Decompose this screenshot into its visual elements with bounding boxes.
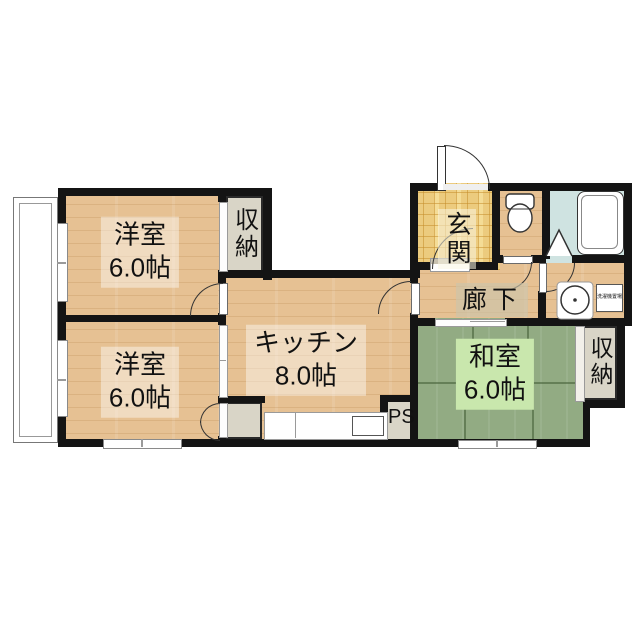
wall bbox=[410, 318, 435, 326]
closet-box bbox=[226, 402, 262, 439]
wall bbox=[380, 395, 415, 402]
washing-machine-label: 洗濯機置場 bbox=[597, 295, 622, 301]
japanese-room-label: 和室 6.0帖 bbox=[456, 339, 534, 410]
folding-door-icon bbox=[543, 227, 575, 258]
washing-machine-pan: 洗濯機置場 bbox=[596, 284, 623, 312]
counter-divider bbox=[295, 412, 296, 438]
storage-right-label: 収納 bbox=[583, 336, 617, 388]
hallway-label: 廊下 bbox=[456, 283, 528, 317]
room-name: 洋室 bbox=[109, 349, 171, 382]
window-tick bbox=[141, 439, 143, 447]
entrance-door-swing-arc bbox=[444, 145, 490, 189]
window-tick bbox=[57, 262, 66, 264]
balcony-inner-line bbox=[19, 203, 52, 437]
toilet-icon bbox=[502, 192, 540, 236]
wall bbox=[58, 315, 226, 322]
wall bbox=[492, 255, 503, 263]
wall bbox=[218, 270, 420, 278]
entrance-label: 玄関 bbox=[438, 209, 476, 269]
room-name: 洋室 bbox=[109, 219, 171, 252]
room-name: キッチン bbox=[254, 327, 358, 360]
washbasin-icon bbox=[556, 281, 596, 321]
wall bbox=[58, 188, 272, 196]
kitchen-door-leaf bbox=[411, 283, 420, 315]
room-size: 6.0帖 bbox=[109, 382, 171, 415]
western-room-2-label: 洋室 6.0帖 bbox=[101, 347, 179, 418]
floor-plan: 洗濯機置場 洋室 6.0帖 洋室 6.0帖 キッチン 8.0帖 和室 6.0帖 … bbox=[0, 0, 640, 640]
room-name: 和室 bbox=[464, 341, 526, 374]
room-size: 6.0帖 bbox=[109, 252, 171, 285]
sliding-door-tick bbox=[470, 321, 505, 322]
window-tick bbox=[496, 440, 498, 447]
sliding-door-opening bbox=[219, 325, 228, 398]
storage-top-label: 収納 bbox=[227, 207, 262, 261]
wall bbox=[492, 183, 500, 262]
wall bbox=[624, 183, 632, 326]
window-tick bbox=[57, 379, 66, 381]
western-room-1-label: 洋室 6.0帖 bbox=[101, 217, 179, 288]
wall bbox=[218, 188, 226, 202]
wall bbox=[488, 183, 632, 191]
wall bbox=[412, 262, 430, 270]
room-size: 8.0帖 bbox=[254, 360, 358, 393]
room-size: 6.0帖 bbox=[464, 374, 526, 407]
bathtub-inner-line bbox=[581, 195, 618, 249]
kitchen-label: キッチン 8.0帖 bbox=[246, 325, 366, 396]
closet-door-opening bbox=[219, 403, 228, 438]
kitchen-sink bbox=[352, 416, 384, 436]
pipe-space-label: PS bbox=[388, 406, 412, 429]
sliding-door-tick bbox=[219, 360, 226, 361]
wall bbox=[263, 188, 272, 280]
wall bbox=[617, 318, 625, 407]
wall bbox=[572, 255, 632, 263]
wall bbox=[538, 291, 546, 318]
